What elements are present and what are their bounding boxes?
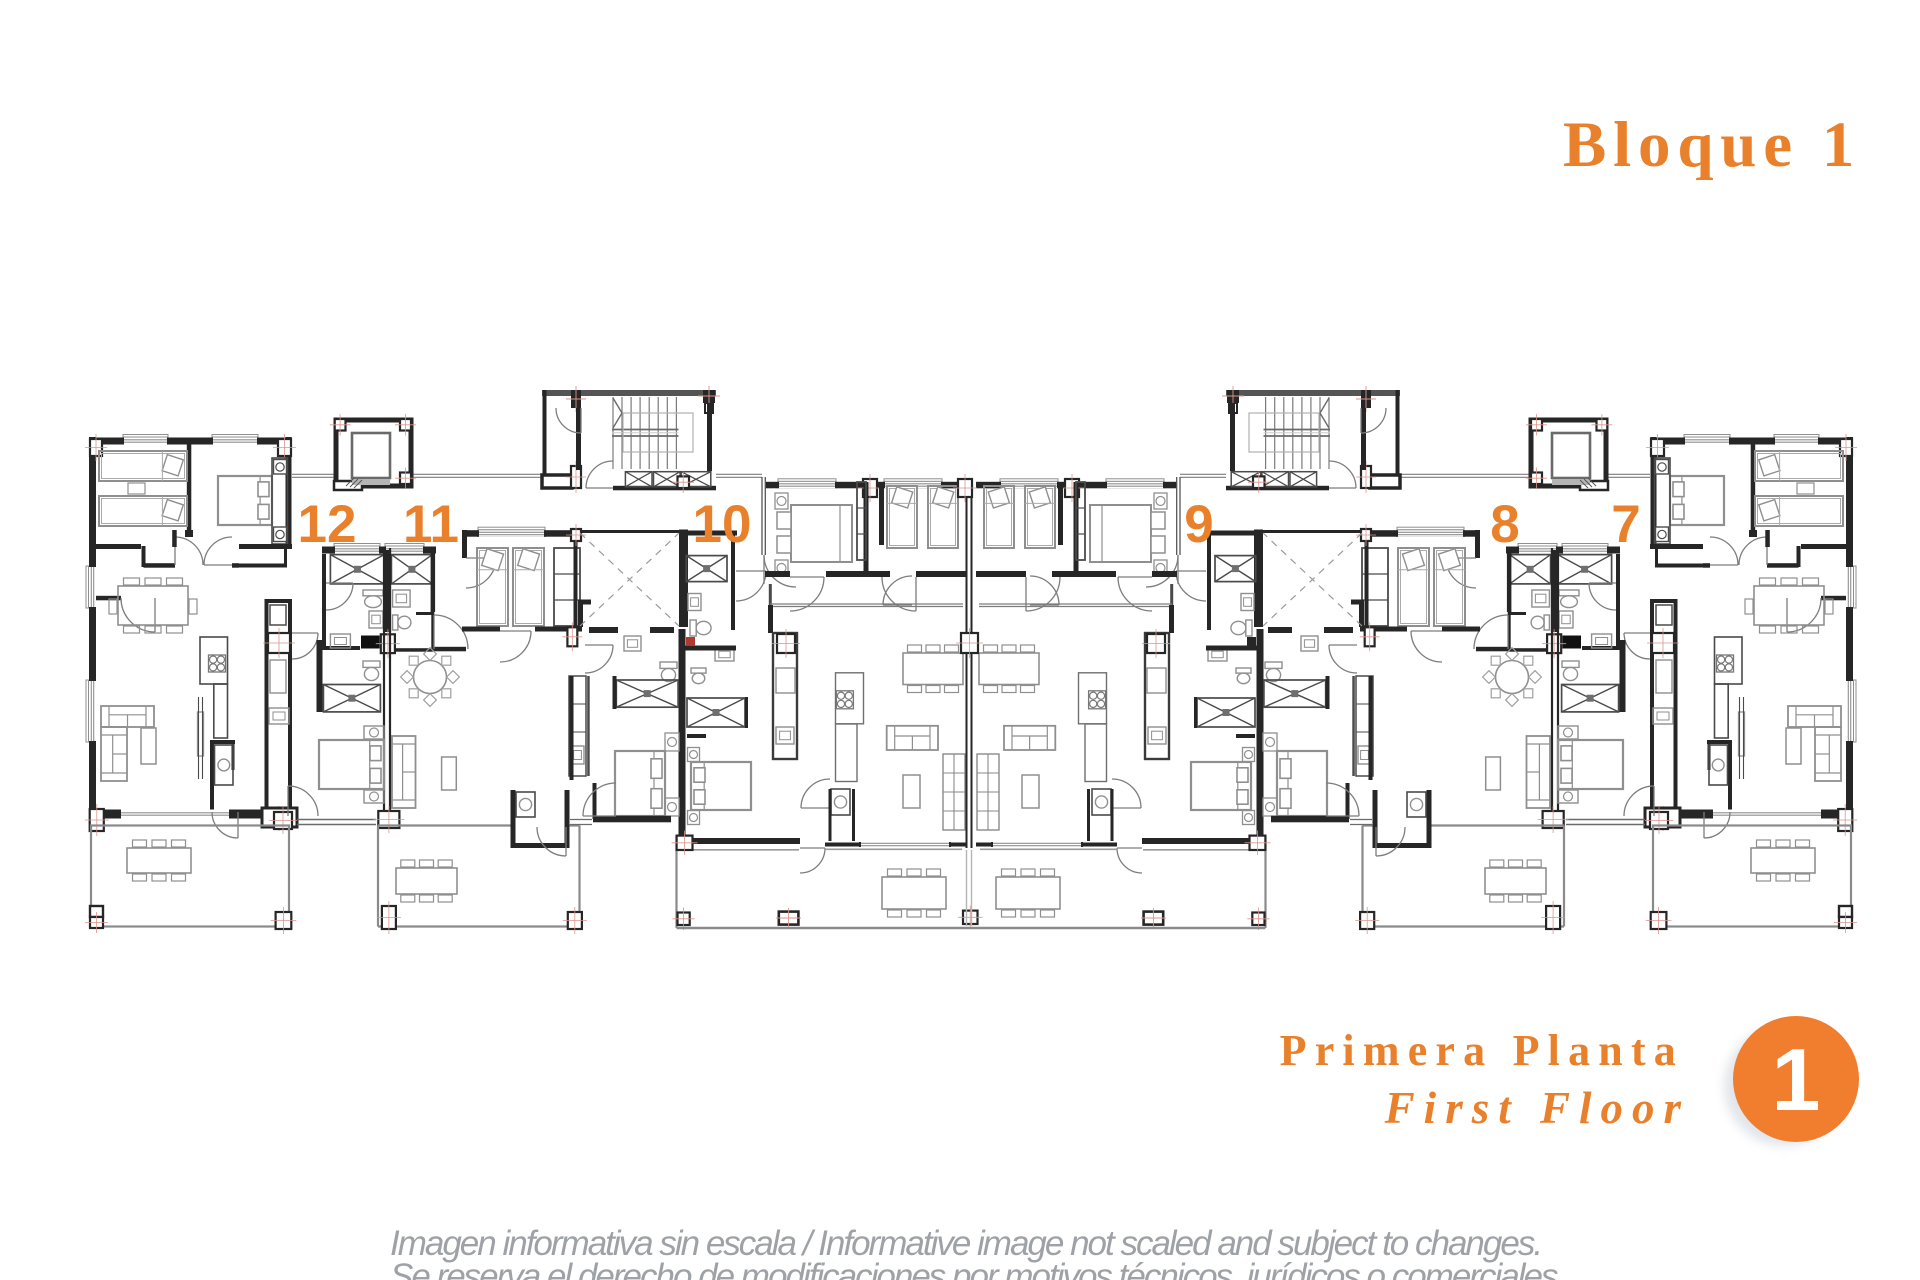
svg-text:12: 12 — [298, 495, 357, 554]
svg-text:8: 8 — [1490, 495, 1519, 554]
svg-text:First Floor: First Floor — [1384, 1083, 1690, 1133]
svg-text:1: 1 — [1772, 1030, 1821, 1129]
svg-text:Bloque 1: Bloque 1 — [1563, 109, 1861, 181]
svg-text:10: 10 — [693, 495, 752, 554]
svg-text:7: 7 — [1611, 495, 1640, 554]
svg-text:11: 11 — [403, 495, 459, 554]
svg-text:Se reserva el derecho de modif: Se reserva el derecho de modificaciones … — [390, 1257, 1564, 1280]
svg-text:Primera Planta: Primera Planta — [1280, 1026, 1684, 1075]
svg-text:9: 9 — [1184, 495, 1213, 554]
